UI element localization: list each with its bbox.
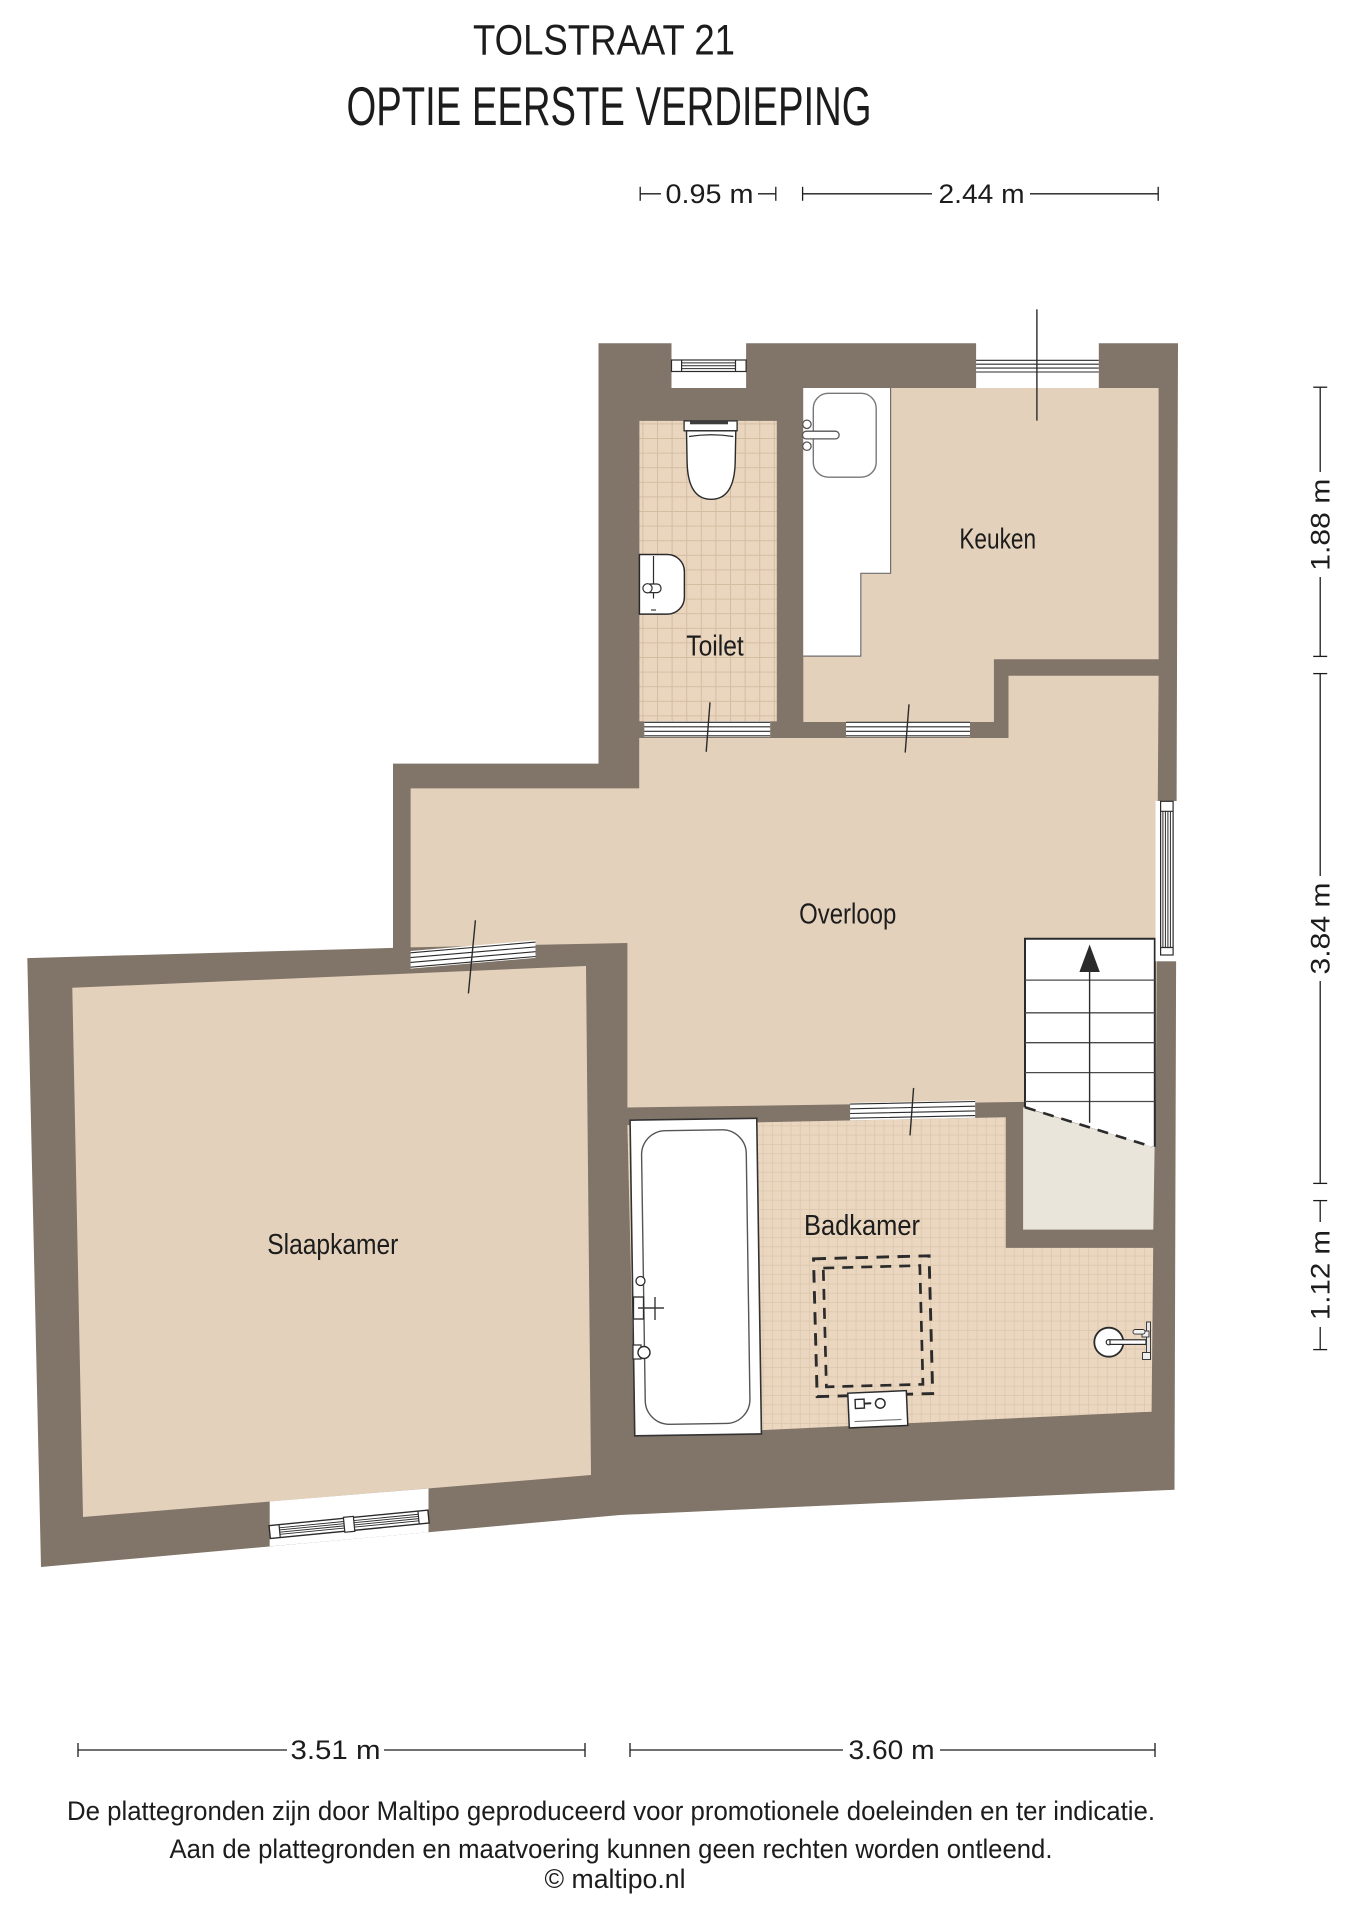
svg-text:De plattegronden zijn door Mal: De plattegronden zijn door Maltipo gepro… <box>67 1796 1155 1826</box>
svg-text:TOLSTRAAT 21: TOLSTRAAT 21 <box>473 18 735 65</box>
svg-text:0.95 m: 0.95 m <box>666 179 754 209</box>
svg-text:3.60 m: 3.60 m <box>849 1735 935 1765</box>
svg-text:Keuken: Keuken <box>959 524 1036 556</box>
svg-text:OPTIE EERSTE VERDIEPING: OPTIE EERSTE VERDIEPING <box>347 75 872 137</box>
svg-text:Badkamer: Badkamer <box>804 1210 920 1242</box>
svg-text:Slaapkamer: Slaapkamer <box>267 1229 398 1261</box>
svg-text:Aan de plattegronden en maatvo: Aan de plattegronden en maatvoering kunn… <box>170 1834 1053 1864</box>
svg-text:3.84 m: 3.84 m <box>1306 883 1336 975</box>
svg-text:1.88 m: 1.88 m <box>1306 479 1336 571</box>
svg-text:1.12 m: 1.12 m <box>1306 1230 1336 1320</box>
svg-text:Toilet: Toilet <box>686 630 743 662</box>
svg-text:© maltipo.nl: © maltipo.nl <box>545 1864 686 1894</box>
svg-text:3.51 m: 3.51 m <box>291 1735 381 1765</box>
svg-text:2.44 m: 2.44 m <box>939 179 1025 209</box>
svg-text:Overloop: Overloop <box>799 899 896 931</box>
